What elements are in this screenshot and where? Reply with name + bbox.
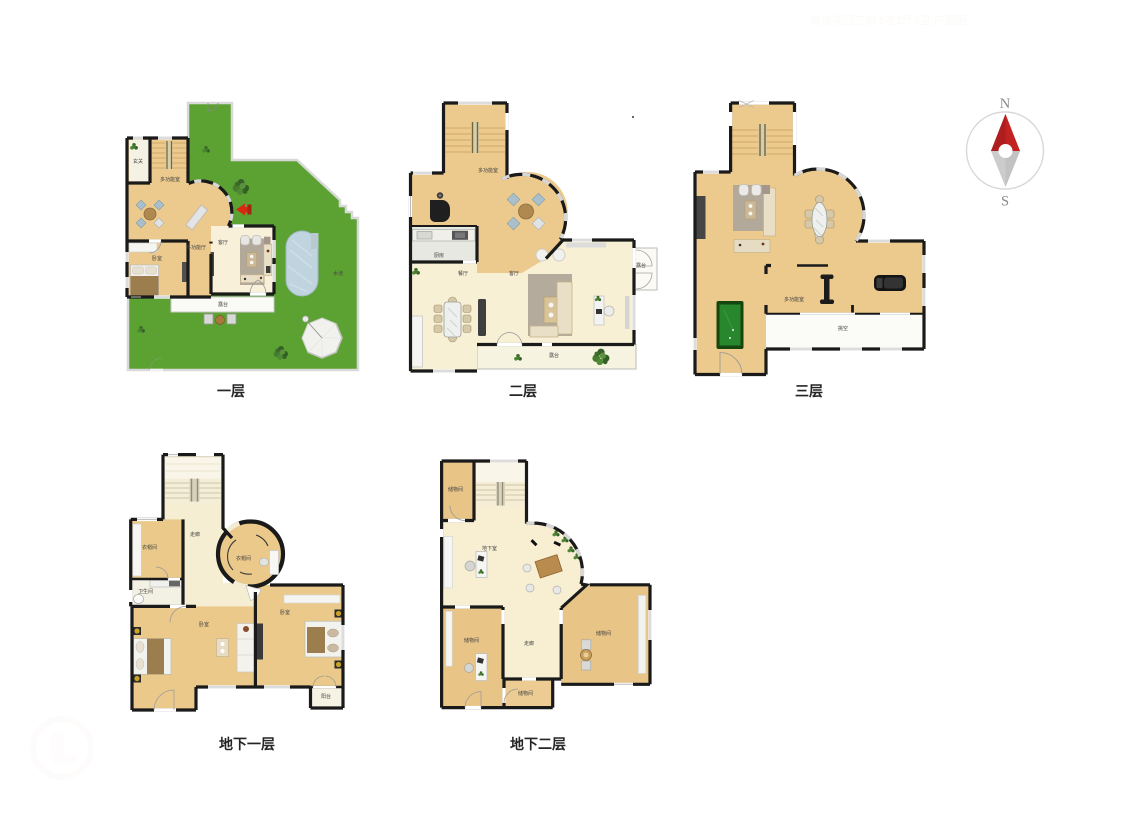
svg-text:厨房: 厨房 — [434, 252, 444, 259]
svg-text:卧室: 卧室 — [152, 255, 162, 262]
svg-text:多功能厅: 多功能厅 — [186, 244, 206, 251]
svg-text:储物间: 储物间 — [596, 630, 611, 637]
svg-text:多功能室: 多功能室 — [478, 167, 498, 174]
svg-text:客厅: 客厅 — [509, 270, 519, 277]
svg-text:卧室: 卧室 — [199, 621, 209, 628]
svg-text:露台: 露台 — [218, 301, 228, 308]
svg-text:走廊: 走廊 — [190, 531, 200, 538]
svg-text:玄关: 玄关 — [133, 158, 143, 165]
svg-text:储物间: 储物间 — [518, 690, 533, 697]
svg-text:衣帽间: 衣帽间 — [236, 555, 251, 562]
svg-text:衣帽间: 衣帽间 — [142, 544, 157, 551]
svg-text:地下室: 地下室 — [482, 545, 497, 552]
svg-text:露台: 露台 — [636, 262, 646, 269]
svg-text:曦城花园三期 5室2厅3卫 户型图: 曦城花园三期 5室2厅3卫 户型图 — [810, 13, 966, 27]
svg-text:卫生间: 卫生间 — [138, 588, 153, 595]
svg-text:地下二层: 地下二层 — [510, 736, 566, 752]
svg-text:储物间: 储物间 — [464, 637, 479, 644]
svg-text:一层: 一层 — [217, 383, 245, 399]
svg-text:卧室: 卧室 — [280, 609, 290, 616]
svg-text:多功能室: 多功能室 — [784, 296, 804, 303]
svg-text:客厅: 客厅 — [218, 239, 228, 246]
svg-text:走廊: 走廊 — [524, 640, 534, 647]
svg-text:水池: 水池 — [333, 270, 343, 277]
svg-text:N: N — [1000, 96, 1011, 112]
svg-text:三层: 三层 — [795, 383, 823, 399]
svg-text:露台: 露台 — [549, 352, 559, 359]
svg-text:阳台: 阳台 — [321, 693, 331, 700]
svg-text:地下一层: 地下一层 — [219, 736, 275, 752]
svg-text:餐厅: 餐厅 — [458, 270, 468, 277]
svg-text:多功能室: 多功能室 — [160, 176, 180, 183]
svg-text:S: S — [1001, 194, 1009, 210]
svg-text:二层: 二层 — [509, 383, 537, 399]
svg-text:储物间: 储物间 — [448, 486, 463, 493]
svg-text:挑空: 挑空 — [838, 325, 848, 332]
